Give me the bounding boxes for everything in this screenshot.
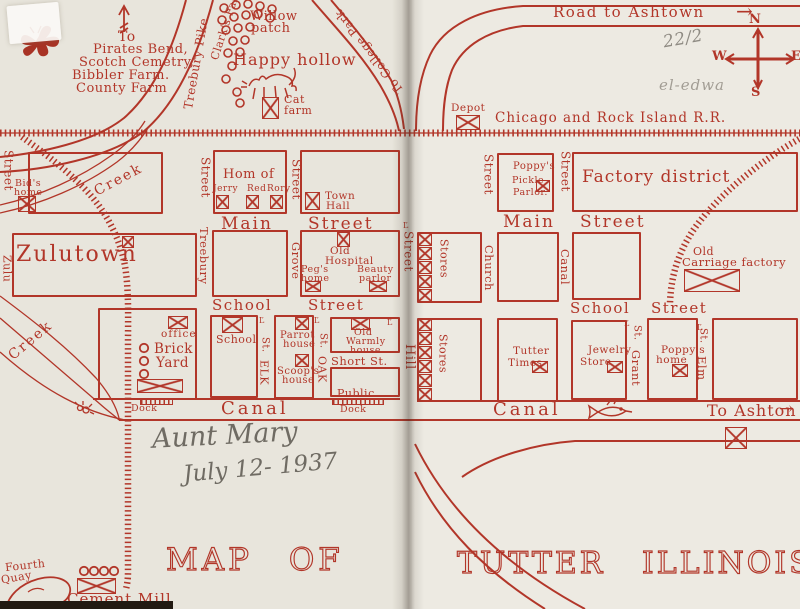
store-building	[418, 318, 432, 331]
lower-creek-b	[0, 318, 119, 420]
zulu-street-label: Zulu	[1, 255, 13, 282]
compass-w-label: W	[712, 50, 727, 64]
factory-district-label: Factory district	[582, 168, 730, 186]
lamp-mark: Ľ	[624, 320, 630, 328]
depot-building	[456, 115, 480, 130]
oak-street-label: OAK	[316, 356, 328, 383]
main-street-label: Main	[221, 215, 273, 233]
hill-label: Hill	[402, 344, 416, 370]
bug-doodle	[75, 401, 94, 414]
bids-home-building	[18, 196, 36, 212]
elk-street-label: ELK	[258, 360, 270, 385]
store-building	[418, 360, 432, 373]
poppys-home-label: home	[656, 355, 687, 366]
pickle-parlor-label: Parlor.	[513, 188, 548, 198]
brick-yard-circles	[140, 344, 148, 378]
tutter-times-label: Times	[508, 358, 542, 369]
cat-farm-building	[262, 97, 279, 119]
ashton-road	[462, 441, 800, 477]
stores-upper-label: Stores	[438, 239, 450, 278]
willow-patch-label: patch	[251, 22, 290, 36]
short-st-label: Short St.	[331, 355, 388, 367]
office-label: office	[161, 329, 197, 340]
road-to-ashtown-label: Road to Ashtown	[553, 5, 705, 21]
elm-st-abbr-label: St.	[697, 328, 708, 344]
treebury-street-label: Street	[199, 157, 212, 198]
canal-label-right: Canal	[493, 400, 561, 419]
rory-label: Rory	[267, 185, 291, 195]
elm-street-label: Elm	[696, 356, 708, 380]
rory-building	[270, 195, 283, 209]
store-building	[418, 261, 432, 274]
jewelry-store-label: Jewelry	[588, 345, 631, 356]
store-building	[418, 388, 432, 401]
ashton-road-building	[725, 427, 747, 449]
railroad-label: Chicago and Rock Island R.R.	[495, 111, 726, 125]
school-building	[222, 317, 243, 333]
town-hall-label: Hall	[326, 201, 350, 212]
store-building	[418, 233, 432, 246]
school-street-label: Street	[308, 298, 364, 314]
map-of-title: MAP OF	[166, 542, 344, 578]
jerry-label: Jerry	[213, 185, 238, 195]
town-hall-building	[305, 192, 320, 210]
hill-street-label: Street	[402, 231, 415, 272]
canal-lines	[93, 399, 800, 420]
public-dock-label: Public	[337, 388, 375, 400]
scoops-house-label: house	[282, 376, 314, 387]
compass-rose	[726, 29, 794, 88]
pickle-parlor-label: Pickle	[512, 176, 544, 186]
happy-hollow-label: Happy hollow	[233, 52, 357, 69]
destination-line: County Farm	[76, 82, 167, 96]
church-street-label: Church	[483, 245, 495, 291]
compass-s-label: S	[751, 86, 761, 100]
compass-e-label: E	[791, 50, 800, 64]
main-street-label-right: Main	[503, 213, 555, 231]
store-building	[418, 332, 432, 345]
lamp-mark: Ľ	[314, 317, 320, 325]
school-house-label: School	[216, 334, 257, 346]
grant-st-abbr-label: St.	[631, 325, 642, 341]
red-building	[246, 195, 259, 209]
carriage-factory-label: Carriage factory	[682, 256, 786, 268]
cement-mill-stacks	[80, 567, 118, 575]
fish-doodle	[589, 400, 632, 418]
parrot-house-building	[295, 317, 309, 330]
brick-yard-label: Yard	[156, 356, 189, 370]
hom-of-label: Hom of	[223, 168, 274, 182]
store-building	[418, 374, 432, 387]
right-arrow-glyph: →	[779, 400, 794, 418]
store-building	[418, 346, 432, 359]
lamp-mark: Ľ	[403, 222, 409, 230]
jewelry-store-label: Store	[580, 357, 611, 368]
main-street-label-right: Street	[580, 213, 646, 231]
tutter-illinois-title: TUTTER ILLINOIS	[457, 546, 800, 581]
left-railroad-spur	[22, 137, 128, 589]
grove-street-label: Street	[290, 159, 303, 200]
bottom-curve-inner	[415, 472, 545, 609]
public-dock-label: Dock	[340, 405, 366, 415]
stores-lower-label: Stores	[437, 334, 449, 373]
bottom-curve-outer	[415, 444, 585, 609]
grant-street-label: Grant	[630, 350, 642, 386]
canal-label-left: Canal	[221, 399, 289, 418]
pegs-home-label: home	[301, 274, 329, 284]
street-label-pickle-west: Street	[482, 154, 495, 195]
carriage-factory-building	[684, 269, 740, 292]
main-street-label: Street	[308, 215, 374, 233]
street-label-left-edge: Street	[2, 150, 15, 191]
dock-label: Dock	[131, 404, 157, 414]
street-label-pickle-east: Street	[559, 151, 572, 192]
oak-st-abbr-label: St.	[317, 333, 328, 349]
school-street-label-right: School	[570, 301, 630, 317]
treebury-label: Treebury	[198, 227, 210, 285]
tutter-times-label: Tutter	[513, 346, 549, 357]
tutter-map-scan: To Pirates Bend, Scotch Cemetry, Bibbler…	[0, 0, 800, 609]
compass-n-label: N	[749, 13, 761, 27]
depot-label: Depot	[451, 103, 485, 114]
school-street-label-right: Street	[651, 301, 707, 317]
lamp-mark: Ľ	[259, 317, 265, 325]
school-street-label: School	[212, 298, 272, 314]
cat-farm-label: farm	[284, 105, 312, 117]
red-label: Red	[247, 185, 266, 195]
bids-home-label: home	[14, 188, 42, 198]
elk-st-abbr-label: St.	[259, 337, 270, 353]
zulutown-label: Zulutown	[16, 243, 138, 266]
beauty-parlor-label: parlor	[359, 274, 392, 284]
store-building	[418, 275, 432, 288]
brick-yard-building	[137, 379, 183, 393]
jerry-building	[216, 195, 229, 209]
pickle-parlor-label: Poppy's	[513, 162, 555, 173]
penciled-name: el-edwa	[659, 78, 725, 94]
bottom-scan-edge	[0, 601, 173, 609]
store-building	[418, 247, 432, 260]
parrot-house-label: house	[283, 340, 315, 351]
tape-patch	[6, 2, 61, 44]
store-building	[418, 289, 432, 302]
canal-street-label: Canal	[559, 249, 571, 285]
lamp-mark: Ľ	[387, 319, 393, 327]
